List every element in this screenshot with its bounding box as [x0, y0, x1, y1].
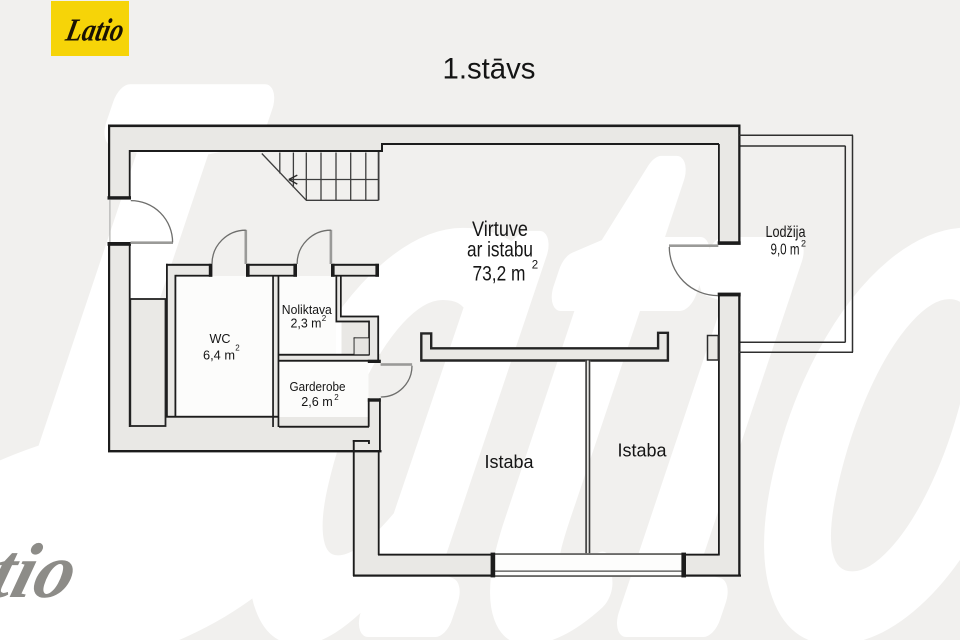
svg-text:2: 2: [532, 260, 538, 272]
svg-text:WC: WC: [210, 331, 231, 346]
svg-text:Garderobe: Garderobe: [290, 379, 346, 394]
svg-text:2,6 m: 2,6 m: [301, 394, 333, 409]
svg-text:ar istabu: ar istabu: [467, 239, 533, 262]
svg-text:Istaba: Istaba: [485, 451, 535, 472]
svg-text:73,2 m: 73,2 m: [473, 263, 526, 286]
svg-text:2: 2: [235, 344, 240, 353]
svg-text:2: 2: [322, 314, 327, 323]
svg-text:2: 2: [334, 393, 339, 402]
svg-text:6,4 m: 6,4 m: [203, 348, 235, 363]
svg-text:1.stāvs: 1.stāvs: [443, 53, 536, 86]
svg-text:2: 2: [801, 239, 806, 249]
svg-text:Istaba: Istaba: [618, 440, 668, 461]
svg-text:9,0 m: 9,0 m: [771, 242, 800, 259]
svg-text:Lodžija: Lodžija: [766, 224, 806, 241]
svg-text:Latio: Latio: [62, 12, 127, 48]
svg-text:2,3 m: 2,3 m: [291, 316, 322, 331]
